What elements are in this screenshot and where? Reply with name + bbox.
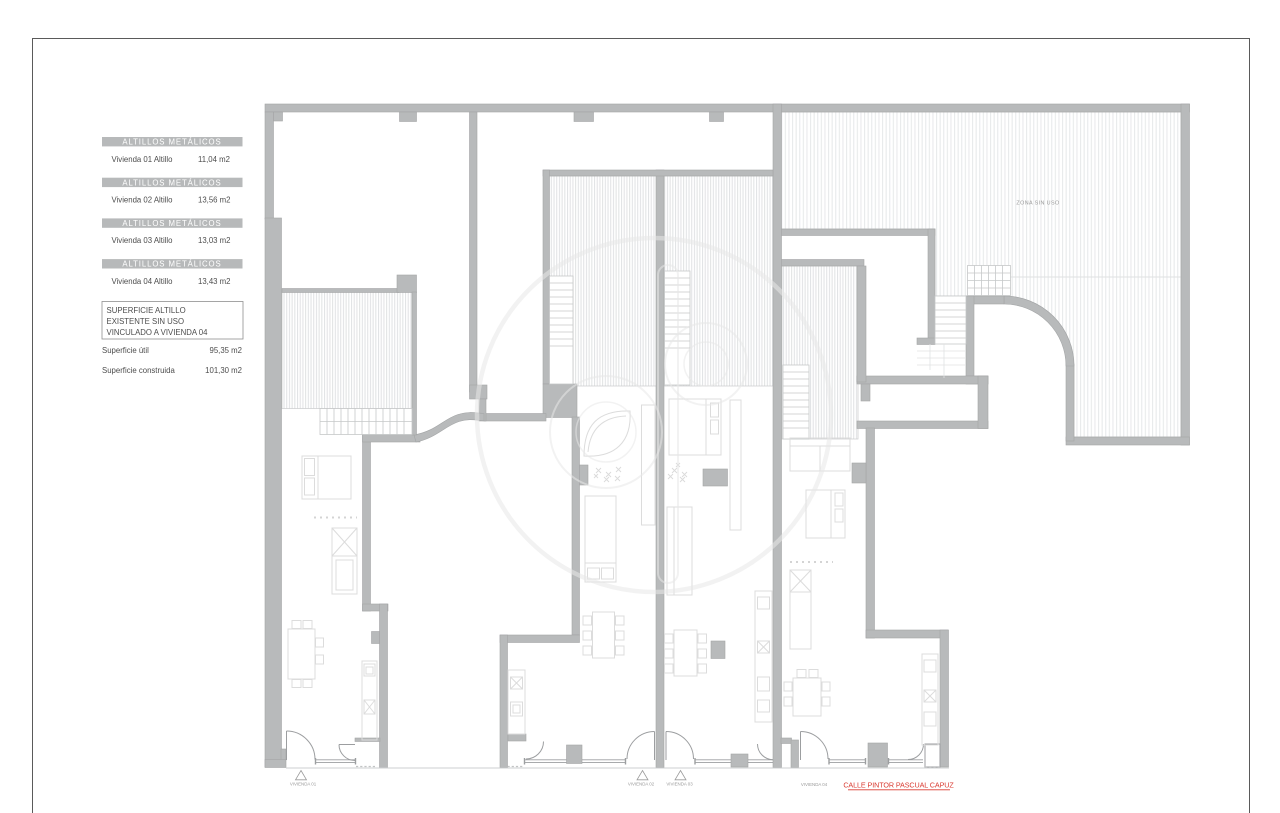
svg-text:CALLE PINTOR PASCUAL CAPUZ: CALLE PINTOR PASCUAL CAPUZ bbox=[843, 781, 954, 790]
svg-text:SUPERFICIE ALTILLO: SUPERFICIE ALTILLO bbox=[107, 306, 186, 315]
svg-text:95,35 m2: 95,35 m2 bbox=[209, 346, 242, 355]
svg-text:101,30 m2: 101,30 m2 bbox=[205, 366, 242, 375]
svg-text:13,43 m2: 13,43 m2 bbox=[198, 277, 231, 286]
svg-text:ALTILLOS METÁLICOS: ALTILLOS METÁLICOS bbox=[122, 138, 221, 147]
svg-text:Vivienda 01 Altillo: Vivienda 01 Altillo bbox=[112, 155, 174, 164]
svg-text:Superficie construida: Superficie construida bbox=[102, 366, 175, 375]
svg-text:VINCULADO A VIVIENDA 04: VINCULADO A VIVIENDA 04 bbox=[107, 328, 209, 337]
svg-text:13,03 m2: 13,03 m2 bbox=[198, 236, 231, 245]
svg-text:VIVIENDA 01: VIVIENDA 01 bbox=[290, 782, 317, 787]
svg-text:ALTILLOS METÁLICOS: ALTILLOS METÁLICOS bbox=[122, 178, 221, 187]
svg-text:ALTILLOS METÁLICOS: ALTILLOS METÁLICOS bbox=[122, 260, 221, 269]
svg-text:VIVIENDA 03: VIVIENDA 03 bbox=[666, 782, 693, 787]
svg-text:ZONA SIN USO: ZONA SIN USO bbox=[1016, 201, 1059, 207]
svg-text:Vivienda 03 Altillo: Vivienda 03 Altillo bbox=[112, 236, 174, 245]
svg-text:Vivienda 02 Altillo: Vivienda 02 Altillo bbox=[112, 196, 174, 205]
svg-text:VIVIENDA 02: VIVIENDA 02 bbox=[628, 782, 655, 787]
svg-text:EXISTENTE SIN USO: EXISTENTE SIN USO bbox=[107, 317, 185, 326]
svg-text:Vivienda 04 Altillo: Vivienda 04 Altillo bbox=[112, 277, 174, 286]
svg-text:11,04 m2: 11,04 m2 bbox=[198, 155, 230, 164]
svg-text:ALTILLOS METÁLICOS: ALTILLOS METÁLICOS bbox=[122, 219, 221, 228]
svg-text:Superficie útil: Superficie útil bbox=[102, 346, 149, 355]
svg-text:13,56 m2: 13,56 m2 bbox=[198, 196, 231, 205]
svg-text:VIVIENDA 04: VIVIENDA 04 bbox=[801, 782, 828, 787]
